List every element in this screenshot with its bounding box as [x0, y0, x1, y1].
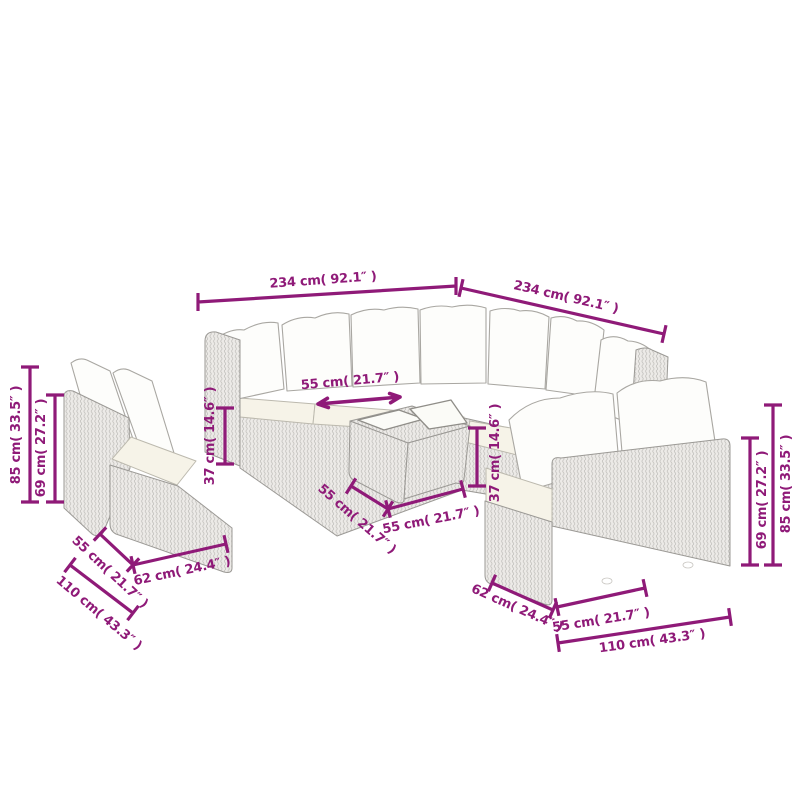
dim-back-height-left: 69 cm( 27.2″ ) — [34, 395, 64, 502]
dimension-label: 85 cm( 33.5″ ) — [779, 435, 794, 534]
product-dimension-diagram: 234 cm( 92.1″ ) 234 cm( 92.1″ ) 55 cm( 2… — [0, 0, 800, 800]
dimension-label: 62 cm( 24.4″ ) — [132, 554, 231, 589]
screw-hole — [683, 562, 693, 568]
dimension-label: 234 cm( 92.1″ ) — [269, 269, 377, 291]
back-cushion — [420, 305, 486, 384]
dimension-label: 69 cm( 27.2″ ) — [755, 451, 770, 550]
screw-hole — [602, 578, 612, 584]
right-sofa-illustration — [485, 378, 730, 605]
right-sofa-back — [552, 439, 730, 566]
diagram-canvas: 234 cm( 92.1″ ) 234 cm( 92.1″ ) 55 cm( 2… — [0, 0, 800, 800]
back-cushion — [488, 309, 549, 390]
dim-seat-width-right: 55 cm( 21.7″ ) — [551, 579, 651, 635]
dimension-label: 37 cm( 14.6″ ) — [488, 404, 503, 503]
dim-back-height-right: 69 cm( 27.2″ ) — [741, 438, 770, 565]
dimension-label: 37 cm( 14.6″ ) — [203, 387, 218, 486]
dimension-label: 69 cm( 27.2″ ) — [34, 399, 49, 498]
dimension-label: 110 cm( 43.3″ ) — [598, 627, 706, 657]
dim-sofa-width-left: 234 cm( 92.1″ ) — [198, 269, 456, 311]
dimension-label: 85 cm( 33.5″ ) — [9, 386, 24, 485]
